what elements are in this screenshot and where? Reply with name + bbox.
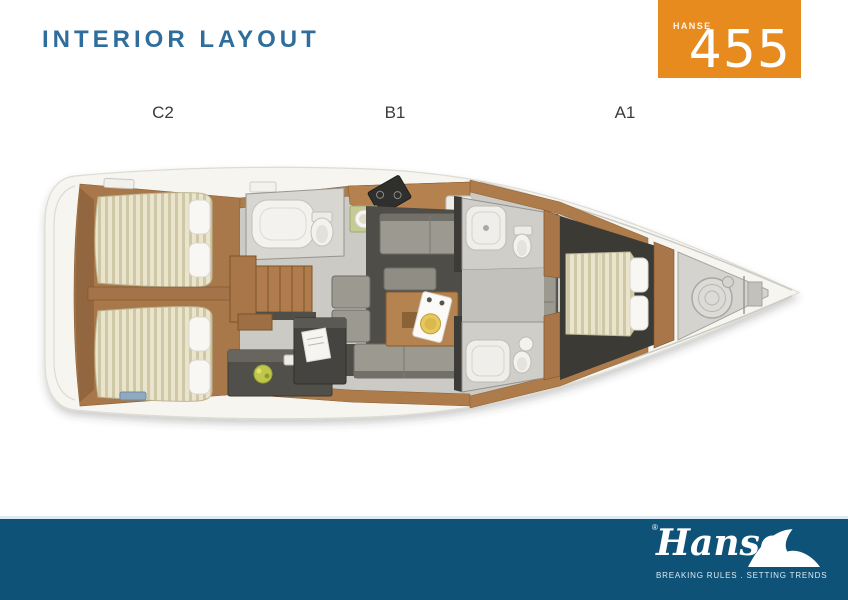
hanse-wave-icon [748, 526, 820, 572]
hanse-logo: ® Hanse BREAKING RULES . SETTING TRENDS [648, 524, 828, 590]
aft-cabins [74, 178, 242, 406]
yacht-floorplan-top-view [0, 0, 848, 600]
saloon-table [386, 291, 458, 346]
nav-station [294, 318, 346, 384]
footer-tagline: BREAKING RULES . SETTING TRENDS [656, 571, 826, 580]
aft-head [246, 188, 344, 260]
brochure-page: INTERIOR LAYOUT HANSE 455 C2 B1 A1 [0, 0, 848, 600]
rope-coil [692, 277, 734, 319]
plant-decor [254, 365, 272, 383]
